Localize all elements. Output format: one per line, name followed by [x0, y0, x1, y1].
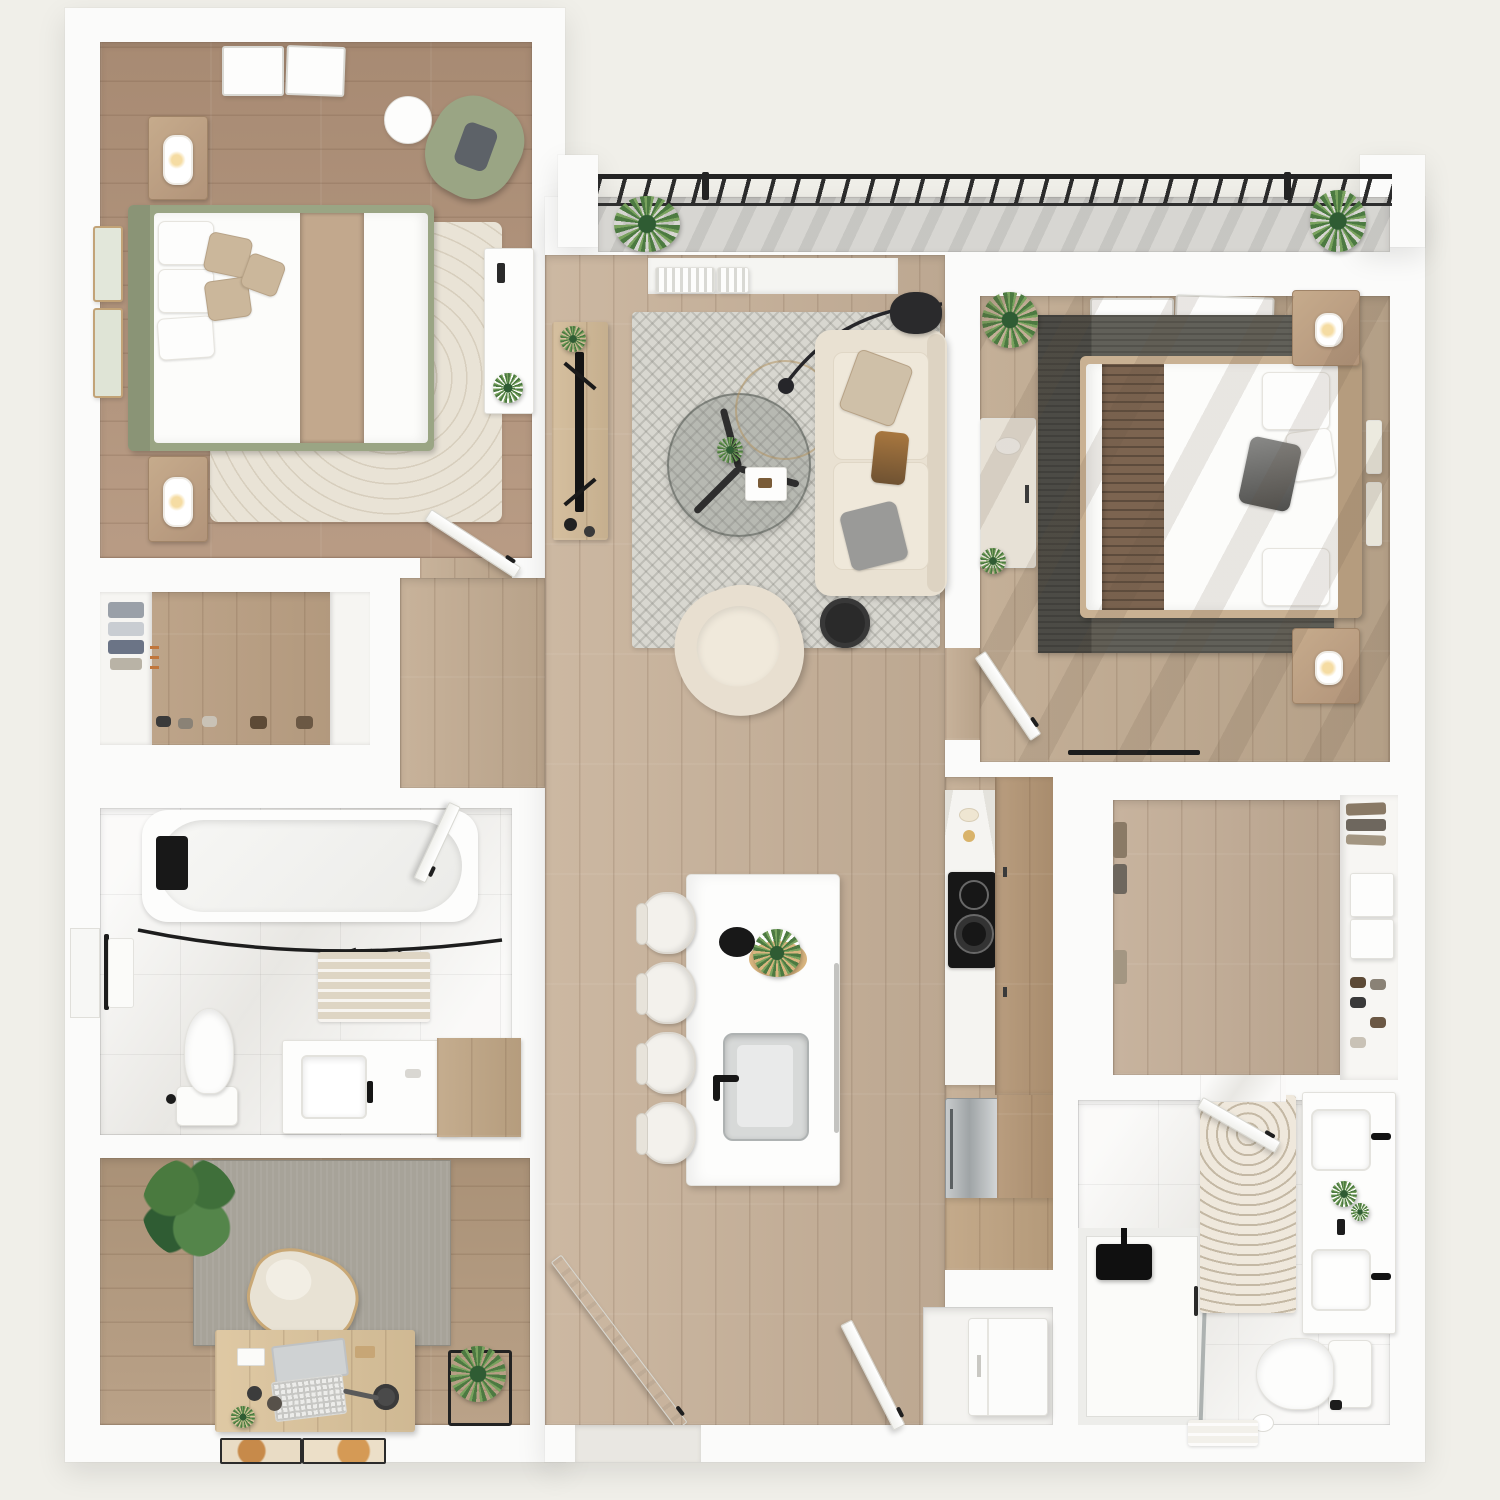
dresser-decor: [995, 437, 1021, 455]
console-decor: [497, 263, 505, 283]
towel-mat: [1188, 1420, 1258, 1446]
closet-shelving-unit: [1340, 795, 1398, 1080]
bar-stool: [640, 892, 696, 954]
vanity-sink: [1311, 1249, 1371, 1311]
hanger-hook: [150, 646, 159, 649]
table-leg: [693, 466, 742, 515]
double-vanity: [1302, 1092, 1396, 1334]
desk-plant: [231, 1406, 255, 1428]
room-walk-in-closet: [1113, 800, 1340, 1075]
kitchen-island: [686, 874, 840, 1186]
window-panel: [285, 45, 346, 97]
railing-post: [702, 172, 709, 200]
wall-rail: [1068, 750, 1200, 755]
toiletry-bottle: [1337, 1219, 1345, 1235]
fridge: [945, 1098, 999, 1200]
hanger-hook: [150, 666, 159, 669]
room-bedroom-1: [100, 42, 532, 558]
bed-2-headboard: [1338, 356, 1362, 618]
entry-door-right: [840, 1320, 905, 1431]
washer-cabinet: [968, 1318, 1048, 1416]
console-table: [484, 248, 534, 414]
wall-art-frame: [93, 308, 123, 398]
counter-decor: [963, 830, 975, 842]
threshold-bathroom2: [1200, 1075, 1286, 1102]
vanity: [282, 1040, 460, 1134]
vanity-faucet: [1371, 1273, 1391, 1280]
balcony-railing: [598, 174, 1392, 206]
armchair-green: [410, 82, 538, 213]
room-bedroom-2: [980, 296, 1390, 762]
bathroom1-window: [70, 928, 100, 1018]
tub-faucet: [156, 836, 188, 890]
ceiling-vent: [655, 267, 715, 293]
room-kitchen-run: [945, 777, 1053, 1270]
threshold-bedroom2: [945, 648, 980, 740]
bar-stool: [640, 962, 696, 1024]
speaker: [584, 526, 595, 537]
shower-curtain-rod: [100, 920, 512, 964]
bar-stool: [640, 1032, 696, 1094]
window-panel: [222, 46, 284, 96]
bed-2-runner: [1102, 364, 1164, 610]
toilet-bowl: [1256, 1338, 1334, 1410]
cabinet-handle: [1003, 867, 1007, 877]
console-plant: [493, 373, 523, 403]
room-bathroom-2: [1078, 1100, 1390, 1425]
pen-tray: [355, 1346, 375, 1358]
toilet-flush-button: [1330, 1400, 1342, 1410]
shower-arm: [1121, 1228, 1127, 1248]
armchair-pillow: [452, 120, 499, 173]
bed-1-frame: [128, 205, 434, 451]
plant-small: [980, 548, 1006, 574]
laptop-keyboard: [271, 1374, 347, 1422]
folded-clothes: [108, 640, 144, 654]
shoes-pair: [156, 716, 171, 727]
vessel-sink: [301, 1055, 367, 1119]
railing-post: [1284, 172, 1291, 200]
console-plant: [560, 326, 586, 352]
leaning-art-frame: [220, 1438, 302, 1464]
shoes-pair: [1370, 979, 1386, 990]
serving-tray: [745, 467, 787, 501]
folded-clothes: [108, 602, 144, 618]
bathtub-basin: [158, 820, 462, 912]
table-lamp: [163, 477, 193, 527]
tv-console: [552, 322, 608, 540]
balcony-plant-right: [1310, 190, 1366, 252]
round-side-table: [384, 96, 432, 144]
lower-cabinets: [945, 1198, 1053, 1270]
cabinet-door-line: [987, 1319, 989, 1415]
room-bathroom-1: [100, 808, 512, 1135]
pillow: [1262, 372, 1330, 430]
storage-box: [1350, 873, 1394, 917]
table-lamp: [163, 135, 193, 185]
fiddle-leaf-plant: [142, 1158, 238, 1258]
hanging-clothes: [1346, 802, 1386, 815]
wall-art-frame: [1366, 420, 1382, 474]
vanity-faucet: [1371, 1133, 1391, 1140]
nightstand: [148, 456, 208, 542]
shower-door-handle: [1194, 1286, 1198, 1316]
sink-faucet: [367, 1081, 373, 1103]
bedroom2-door: [975, 651, 1042, 741]
island-sink: [723, 1033, 809, 1141]
table-plant: [717, 437, 743, 463]
ceiling-vent: [717, 267, 749, 293]
vanity-sink: [1311, 1109, 1371, 1171]
nightstand: [1292, 290, 1360, 366]
burner-ring: [959, 880, 989, 910]
towel-rail: [834, 963, 839, 1133]
entry-threshold: [575, 1425, 701, 1462]
wall-art-frame: [93, 226, 123, 302]
fridge-handle: [950, 1109, 953, 1189]
speaker: [564, 518, 577, 531]
shoes-pair: [202, 716, 217, 727]
shoes-pair: [296, 716, 313, 729]
room-open-plan: [545, 255, 945, 1425]
bed-1-mattress: [154, 213, 428, 443]
tray-decor: [758, 478, 772, 488]
coffee-cup: [247, 1386, 262, 1401]
vanity-plant: [1351, 1203, 1369, 1221]
sofa-backrest: [927, 334, 945, 592]
black-planter: [890, 292, 942, 334]
hanging-clothes: [1113, 822, 1127, 858]
toilet-flush-button: [166, 1094, 176, 1104]
entry-door-left: [551, 1255, 688, 1431]
table-lamp: [1315, 651, 1343, 685]
floor-plan-stage: [0, 0, 1500, 1500]
plant-corner: [982, 292, 1038, 348]
tall-cabinets: [995, 777, 1053, 1095]
soap-dish: [405, 1069, 421, 1078]
burner-ring: [954, 914, 994, 954]
shower-head: [1096, 1244, 1152, 1280]
sofa-pillow: [870, 430, 909, 485]
room-office: [100, 1158, 530, 1425]
sink-basin: [737, 1045, 793, 1127]
folded-clothes: [108, 622, 144, 636]
shoes-pair: [178, 718, 193, 729]
sofa: [815, 330, 947, 596]
dresser-handle: [1025, 485, 1029, 503]
folded-clothes: [110, 658, 142, 670]
dresser: [980, 418, 1036, 568]
vanity-plant: [1331, 1181, 1357, 1207]
table-lamp: [1315, 313, 1343, 347]
island-plant: [753, 929, 801, 977]
hanging-clothes: [1113, 864, 1127, 894]
wall-stub-balcony-left: [558, 155, 598, 247]
bed-1-blanket: [300, 213, 364, 443]
coffee-cup: [267, 1396, 282, 1411]
bath-mat: [318, 952, 430, 1022]
toilet-bowl: [184, 1008, 234, 1094]
shoes-pair: [1350, 1037, 1366, 1048]
shoes-pair: [1350, 997, 1366, 1008]
bar-stool: [640, 1102, 696, 1164]
hanging-towel: [108, 938, 134, 1008]
notebook: [237, 1348, 265, 1366]
room-laundry: [923, 1307, 1053, 1425]
shoes-pair: [1370, 1017, 1386, 1028]
room-closet-1: [100, 592, 370, 745]
storage-box: [1350, 919, 1394, 959]
cooktop: [948, 872, 996, 968]
shoes-pair: [250, 716, 267, 729]
hanging-clothes: [1113, 950, 1127, 984]
shoes-pair: [1350, 977, 1366, 988]
side-table-black: [820, 598, 870, 648]
hanger-hook: [150, 656, 159, 659]
room-hallway: [400, 578, 545, 788]
balcony-plant-left: [614, 196, 680, 252]
desk: [215, 1330, 415, 1432]
closet-shelf-right: [330, 592, 370, 745]
potted-plant: [450, 1346, 506, 1402]
toilet-tank: [1328, 1340, 1372, 1408]
accent-chair-seat: [686, 595, 791, 697]
counter-decor: [959, 808, 979, 822]
leaning-art-frame: [302, 1438, 386, 1464]
nightstand: [148, 116, 208, 200]
cabinet-handle: [977, 1355, 981, 1377]
wall-art-frame: [1366, 482, 1382, 546]
hanging-clothes: [1346, 834, 1386, 845]
pillow: [157, 315, 216, 361]
island-faucet-stem: [713, 1075, 720, 1101]
hanging-clothes: [1346, 819, 1386, 831]
bed-1-headboard: [128, 205, 150, 451]
nightstand: [1292, 628, 1360, 704]
chair-cushion: [261, 1254, 317, 1306]
pillow: [1262, 548, 1330, 606]
cabinet-handle: [1003, 987, 1007, 997]
vanity-side-cabinet: [437, 1038, 521, 1137]
